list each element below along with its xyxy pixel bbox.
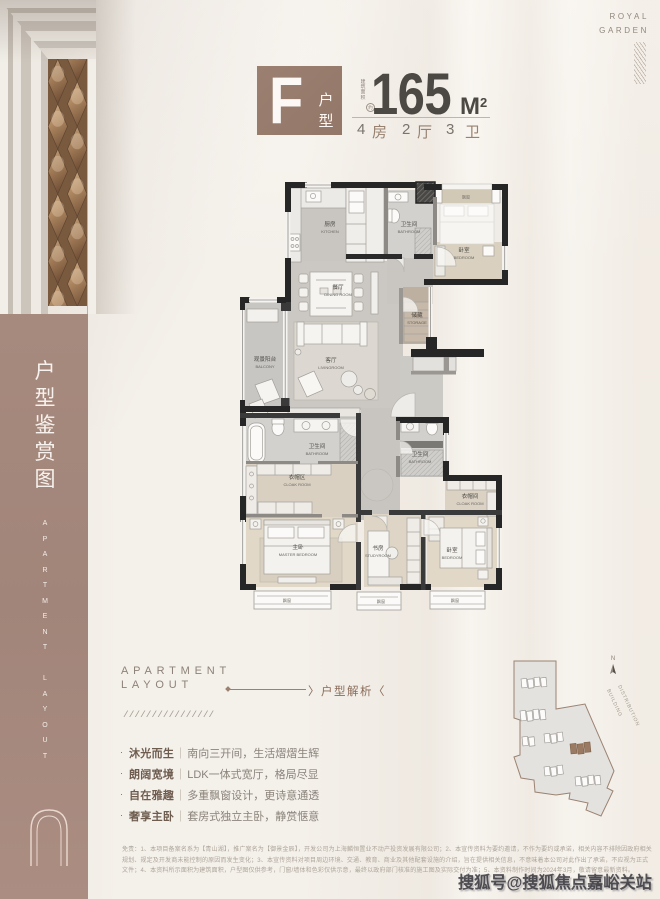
svg-text:观景阳台: 观景阳台 bbox=[254, 355, 277, 363]
svg-text:BATHROOM: BATHROOM bbox=[409, 459, 432, 464]
svg-text:MASTER BEDROOM: MASTER BEDROOM bbox=[279, 552, 317, 557]
svg-text:卧室: 卧室 bbox=[446, 546, 458, 554]
svg-text:飘窗: 飘窗 bbox=[462, 194, 470, 200]
svg-text:CLOAK ROOM: CLOAK ROOM bbox=[283, 482, 310, 487]
svg-text:餐厅: 餐厅 bbox=[332, 283, 344, 291]
svg-text:DINING ROOM: DINING ROOM bbox=[324, 292, 352, 297]
svg-text:BATHROOM: BATHROOM bbox=[398, 229, 421, 234]
svg-text:书房: 书房 bbox=[372, 544, 384, 552]
svg-text:衣帽间: 衣帽间 bbox=[462, 492, 479, 500]
svg-text:衣帽区: 衣帽区 bbox=[289, 473, 306, 481]
svg-text:卫生间: 卫生间 bbox=[401, 220, 418, 228]
svg-text:卧室: 卧室 bbox=[458, 246, 470, 254]
svg-text:STUDYROOM: STUDYROOM bbox=[365, 553, 391, 558]
svg-text:卫生间: 卫生间 bbox=[309, 442, 326, 450]
svg-text:LIVINGROOM: LIVINGROOM bbox=[318, 365, 344, 370]
svg-text:储藏: 储藏 bbox=[411, 311, 423, 319]
svg-text:BEDROOM: BEDROOM bbox=[454, 255, 475, 260]
svg-text:N: N bbox=[611, 656, 615, 662]
svg-text:STORAGE: STORAGE bbox=[407, 320, 427, 325]
svg-text:卫生间: 卫生间 bbox=[412, 450, 429, 458]
svg-text:飘窗: 飘窗 bbox=[451, 597, 459, 604]
svg-text:飘窗: 飘窗 bbox=[283, 597, 291, 604]
svg-text:厨房: 厨房 bbox=[324, 220, 336, 228]
svg-text:主卧: 主卧 bbox=[292, 543, 304, 551]
svg-text:BALCONY: BALCONY bbox=[255, 364, 274, 369]
svg-text:CLOAK ROOM: CLOAK ROOM bbox=[456, 501, 483, 506]
svg-text:KITCHEN: KITCHEN bbox=[321, 229, 339, 234]
svg-text:客厅: 客厅 bbox=[325, 356, 337, 364]
svg-text:BATHROOM: BATHROOM bbox=[306, 451, 329, 456]
svg-text:BEDROOM: BEDROOM bbox=[442, 555, 463, 560]
svg-text:飘窗: 飘窗 bbox=[377, 598, 385, 605]
